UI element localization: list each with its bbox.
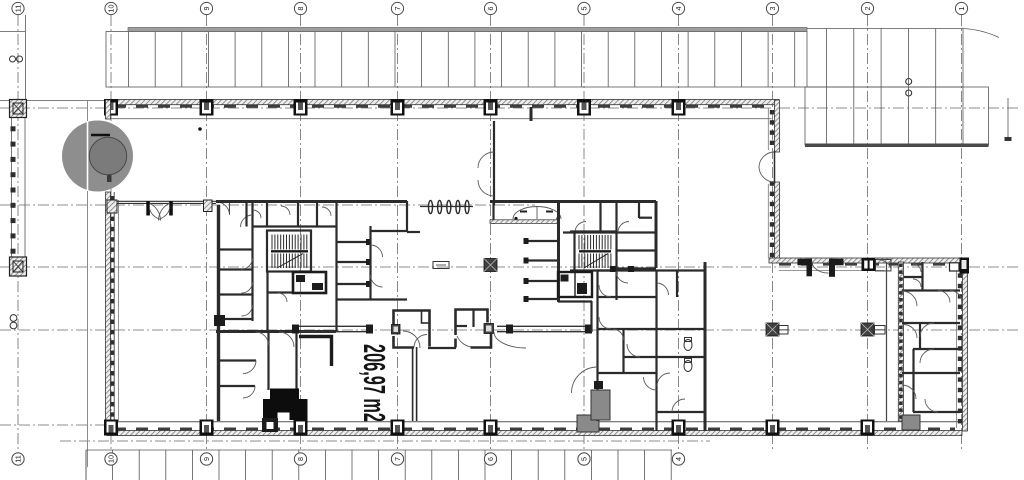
svg-text:5: 5 xyxy=(580,457,589,461)
svg-text:8: 8 xyxy=(296,7,305,11)
svg-text:11: 11 xyxy=(14,455,23,462)
svg-text:3: 3 xyxy=(768,7,777,11)
svg-text:2: 2 xyxy=(863,7,872,11)
svg-text:6: 6 xyxy=(486,457,495,461)
svg-text:7: 7 xyxy=(393,7,402,11)
svg-text:7: 7 xyxy=(393,457,402,461)
svg-text:9: 9 xyxy=(202,7,211,11)
svg-text:6: 6 xyxy=(486,7,495,11)
svg-text:4: 4 xyxy=(674,457,683,461)
svg-text:10: 10 xyxy=(107,455,116,463)
svg-text:4: 4 xyxy=(674,7,683,11)
svg-text:1: 1 xyxy=(957,7,966,11)
svg-text:9: 9 xyxy=(202,457,211,461)
svg-text:8: 8 xyxy=(296,457,305,461)
svg-text:10: 10 xyxy=(107,5,116,13)
svg-text:5: 5 xyxy=(580,7,589,11)
svg-text:11: 11 xyxy=(14,5,23,12)
svg-text:206,97 m2: 206,97 m2 xyxy=(357,344,392,422)
